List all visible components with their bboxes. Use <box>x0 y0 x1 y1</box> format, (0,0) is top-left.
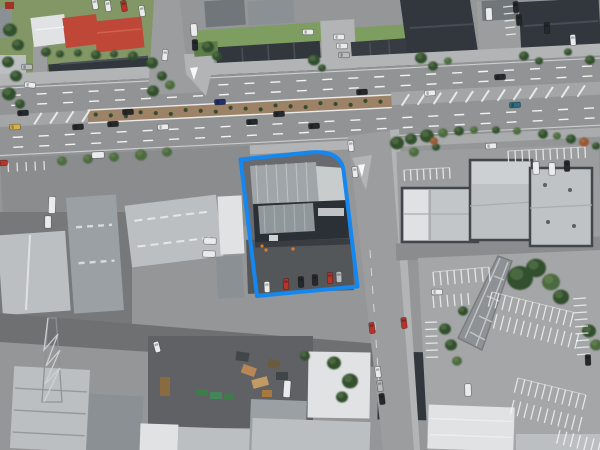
vehicle <box>348 140 354 151</box>
vehicle <box>283 380 291 397</box>
vehicle <box>369 322 376 334</box>
tree <box>336 391 348 402</box>
tree <box>535 57 543 64</box>
tree <box>438 128 448 137</box>
warehouse-roof <box>217 195 244 254</box>
vehicle <box>401 317 408 329</box>
vehicle <box>283 278 289 289</box>
vehicle <box>549 163 556 176</box>
vehicle <box>339 52 350 58</box>
tree <box>458 306 468 315</box>
vehicle <box>377 380 384 392</box>
tree <box>409 147 419 156</box>
vehicle <box>379 393 386 405</box>
unit-roof <box>204 0 246 27</box>
vehicle <box>190 23 198 36</box>
tree <box>342 374 358 389</box>
vehicle <box>92 151 105 158</box>
vehicle <box>485 8 492 21</box>
vehicle <box>17 110 28 116</box>
retail-building <box>530 168 592 246</box>
vehicle <box>107 121 118 127</box>
tree <box>146 57 158 68</box>
vehicle <box>485 143 496 149</box>
vehicle <box>246 119 257 125</box>
vehicle <box>327 272 333 283</box>
tree <box>579 137 589 146</box>
tree <box>542 274 560 291</box>
tree <box>41 47 51 56</box>
warehouse-roof <box>66 194 124 313</box>
tree <box>308 54 320 65</box>
warehouse-roof <box>87 394 144 450</box>
vehicle <box>9 124 20 130</box>
tree <box>10 70 22 81</box>
tree <box>57 156 67 165</box>
vehicle <box>308 123 319 129</box>
tree <box>444 57 452 64</box>
white-gable-roof <box>427 405 514 450</box>
apartment-roof <box>400 0 478 58</box>
tree <box>428 61 438 70</box>
tree <box>405 133 417 144</box>
vehicle <box>22 64 33 70</box>
map-viewport[interactable] <box>0 0 600 450</box>
vehicle <box>264 281 270 292</box>
vehicle <box>424 90 435 96</box>
warehouse-roof <box>178 427 251 450</box>
vehicle <box>303 29 314 35</box>
tree <box>165 80 175 89</box>
vehicle <box>214 99 225 105</box>
vehicle <box>203 251 216 258</box>
tree <box>492 126 500 133</box>
red-roof-house <box>94 17 145 53</box>
tree <box>110 50 118 57</box>
worker <box>264 248 267 251</box>
warehouse-roof <box>251 418 370 450</box>
red-roof-house <box>62 14 99 48</box>
vehicle <box>544 22 550 33</box>
vehicle <box>273 111 284 117</box>
vehicle <box>494 74 505 80</box>
vehicle <box>24 82 35 88</box>
tree <box>553 290 569 305</box>
tree <box>439 323 451 334</box>
aerial-basemap <box>0 0 600 450</box>
tree <box>327 357 341 370</box>
tree <box>585 55 595 64</box>
tree <box>2 88 16 101</box>
vehicle <box>516 14 522 25</box>
tree <box>109 152 119 161</box>
retail-building <box>402 188 478 242</box>
vehicle <box>356 89 367 95</box>
vehicle <box>72 124 83 130</box>
vehicle <box>157 124 168 130</box>
vehicle <box>122 109 133 115</box>
vehicle <box>513 1 519 12</box>
vehicle <box>432 289 443 295</box>
tree <box>415 52 427 63</box>
vehicle <box>45 216 52 229</box>
tree <box>3 24 17 37</box>
vehicle <box>105 0 112 12</box>
tree <box>566 134 576 143</box>
tree <box>135 149 147 160</box>
tree <box>538 129 548 138</box>
vehicle <box>334 34 345 40</box>
tree <box>445 339 457 350</box>
vehicle <box>585 354 591 365</box>
tree <box>470 126 478 133</box>
worker <box>260 244 263 247</box>
tree <box>147 85 159 96</box>
tree <box>564 48 572 55</box>
tree <box>430 137 438 144</box>
tree <box>157 71 167 80</box>
tree <box>212 51 222 60</box>
vehicle <box>352 166 358 177</box>
red-shed-roof <box>5 2 14 9</box>
tree <box>300 351 310 360</box>
tree <box>15 99 25 108</box>
tree <box>74 49 82 56</box>
tree <box>452 356 462 365</box>
tree <box>454 126 464 135</box>
corrugated-roof <box>258 203 315 234</box>
vehicle <box>337 43 348 49</box>
warehouse-roof <box>0 231 71 316</box>
tree <box>390 137 404 150</box>
vehicle <box>298 276 304 287</box>
tree <box>56 50 64 57</box>
retail-building <box>470 160 532 240</box>
vehicle <box>564 160 570 171</box>
tree <box>318 64 326 71</box>
tree <box>526 259 546 277</box>
warehouse-roof <box>140 423 179 450</box>
corrugated-roof <box>250 162 319 206</box>
tree <box>91 50 101 59</box>
vehicle <box>0 160 8 166</box>
worker <box>291 247 294 250</box>
tree <box>519 51 529 60</box>
vehicle <box>48 196 56 213</box>
tree <box>12 39 24 50</box>
tree <box>513 127 521 134</box>
tree <box>553 132 561 139</box>
vehicle <box>533 162 540 175</box>
vehicle <box>336 271 342 282</box>
vehicle <box>162 49 168 60</box>
vehicle <box>312 274 318 285</box>
tree <box>202 41 214 52</box>
tree <box>162 147 172 156</box>
vehicle <box>375 366 382 378</box>
warehouse-roof <box>216 255 244 298</box>
tree <box>2 56 14 67</box>
tree <box>592 142 600 149</box>
vehicle <box>509 102 520 108</box>
unit-roof <box>247 0 295 26</box>
vehicle <box>570 34 576 45</box>
vehicle <box>465 384 472 397</box>
vehicle <box>192 39 198 50</box>
tree <box>128 51 138 60</box>
vehicle <box>204 238 217 245</box>
